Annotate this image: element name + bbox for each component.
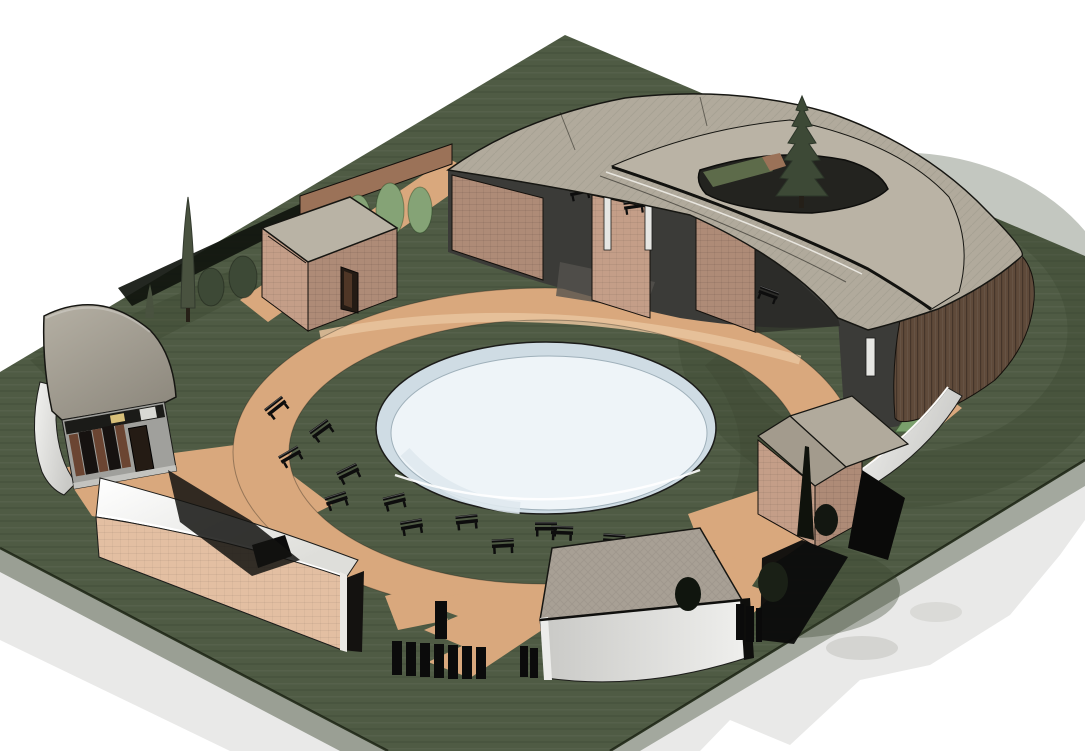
arc-hall-end-post [340, 572, 347, 652]
column [866, 338, 875, 376]
shrub-round [198, 268, 224, 306]
fence-slat [392, 641, 402, 675]
brick-pier-center [592, 195, 650, 318]
tree-dark-round [675, 577, 701, 611]
cypress-trunk [186, 308, 190, 322]
cube-door-leaf [344, 271, 352, 308]
fence-slat [434, 644, 444, 678]
fence-slat [746, 606, 754, 642]
fence-slat [448, 645, 458, 679]
fence-slat [530, 648, 538, 678]
site-render-canvas [0, 0, 1085, 751]
tree-round-light [408, 187, 432, 233]
tree-shadow-on-ground [826, 636, 898, 660]
fence-slat [406, 642, 416, 676]
column [645, 200, 652, 250]
tree-dark-round [814, 504, 838, 536]
shrub-round [229, 256, 257, 298]
fence-slat [736, 604, 744, 640]
fence-slat [476, 647, 486, 679]
fence-slat [520, 646, 528, 677]
courtyard-conifer-trunk [799, 196, 804, 208]
tree-dark-round [758, 562, 788, 602]
viewport-3d[interactable] [0, 0, 1085, 751]
column [604, 196, 611, 250]
tree-shadow-on-ground [910, 602, 962, 622]
fence-slat [420, 643, 430, 677]
fence-slat [462, 646, 472, 679]
fence-post [435, 601, 447, 639]
